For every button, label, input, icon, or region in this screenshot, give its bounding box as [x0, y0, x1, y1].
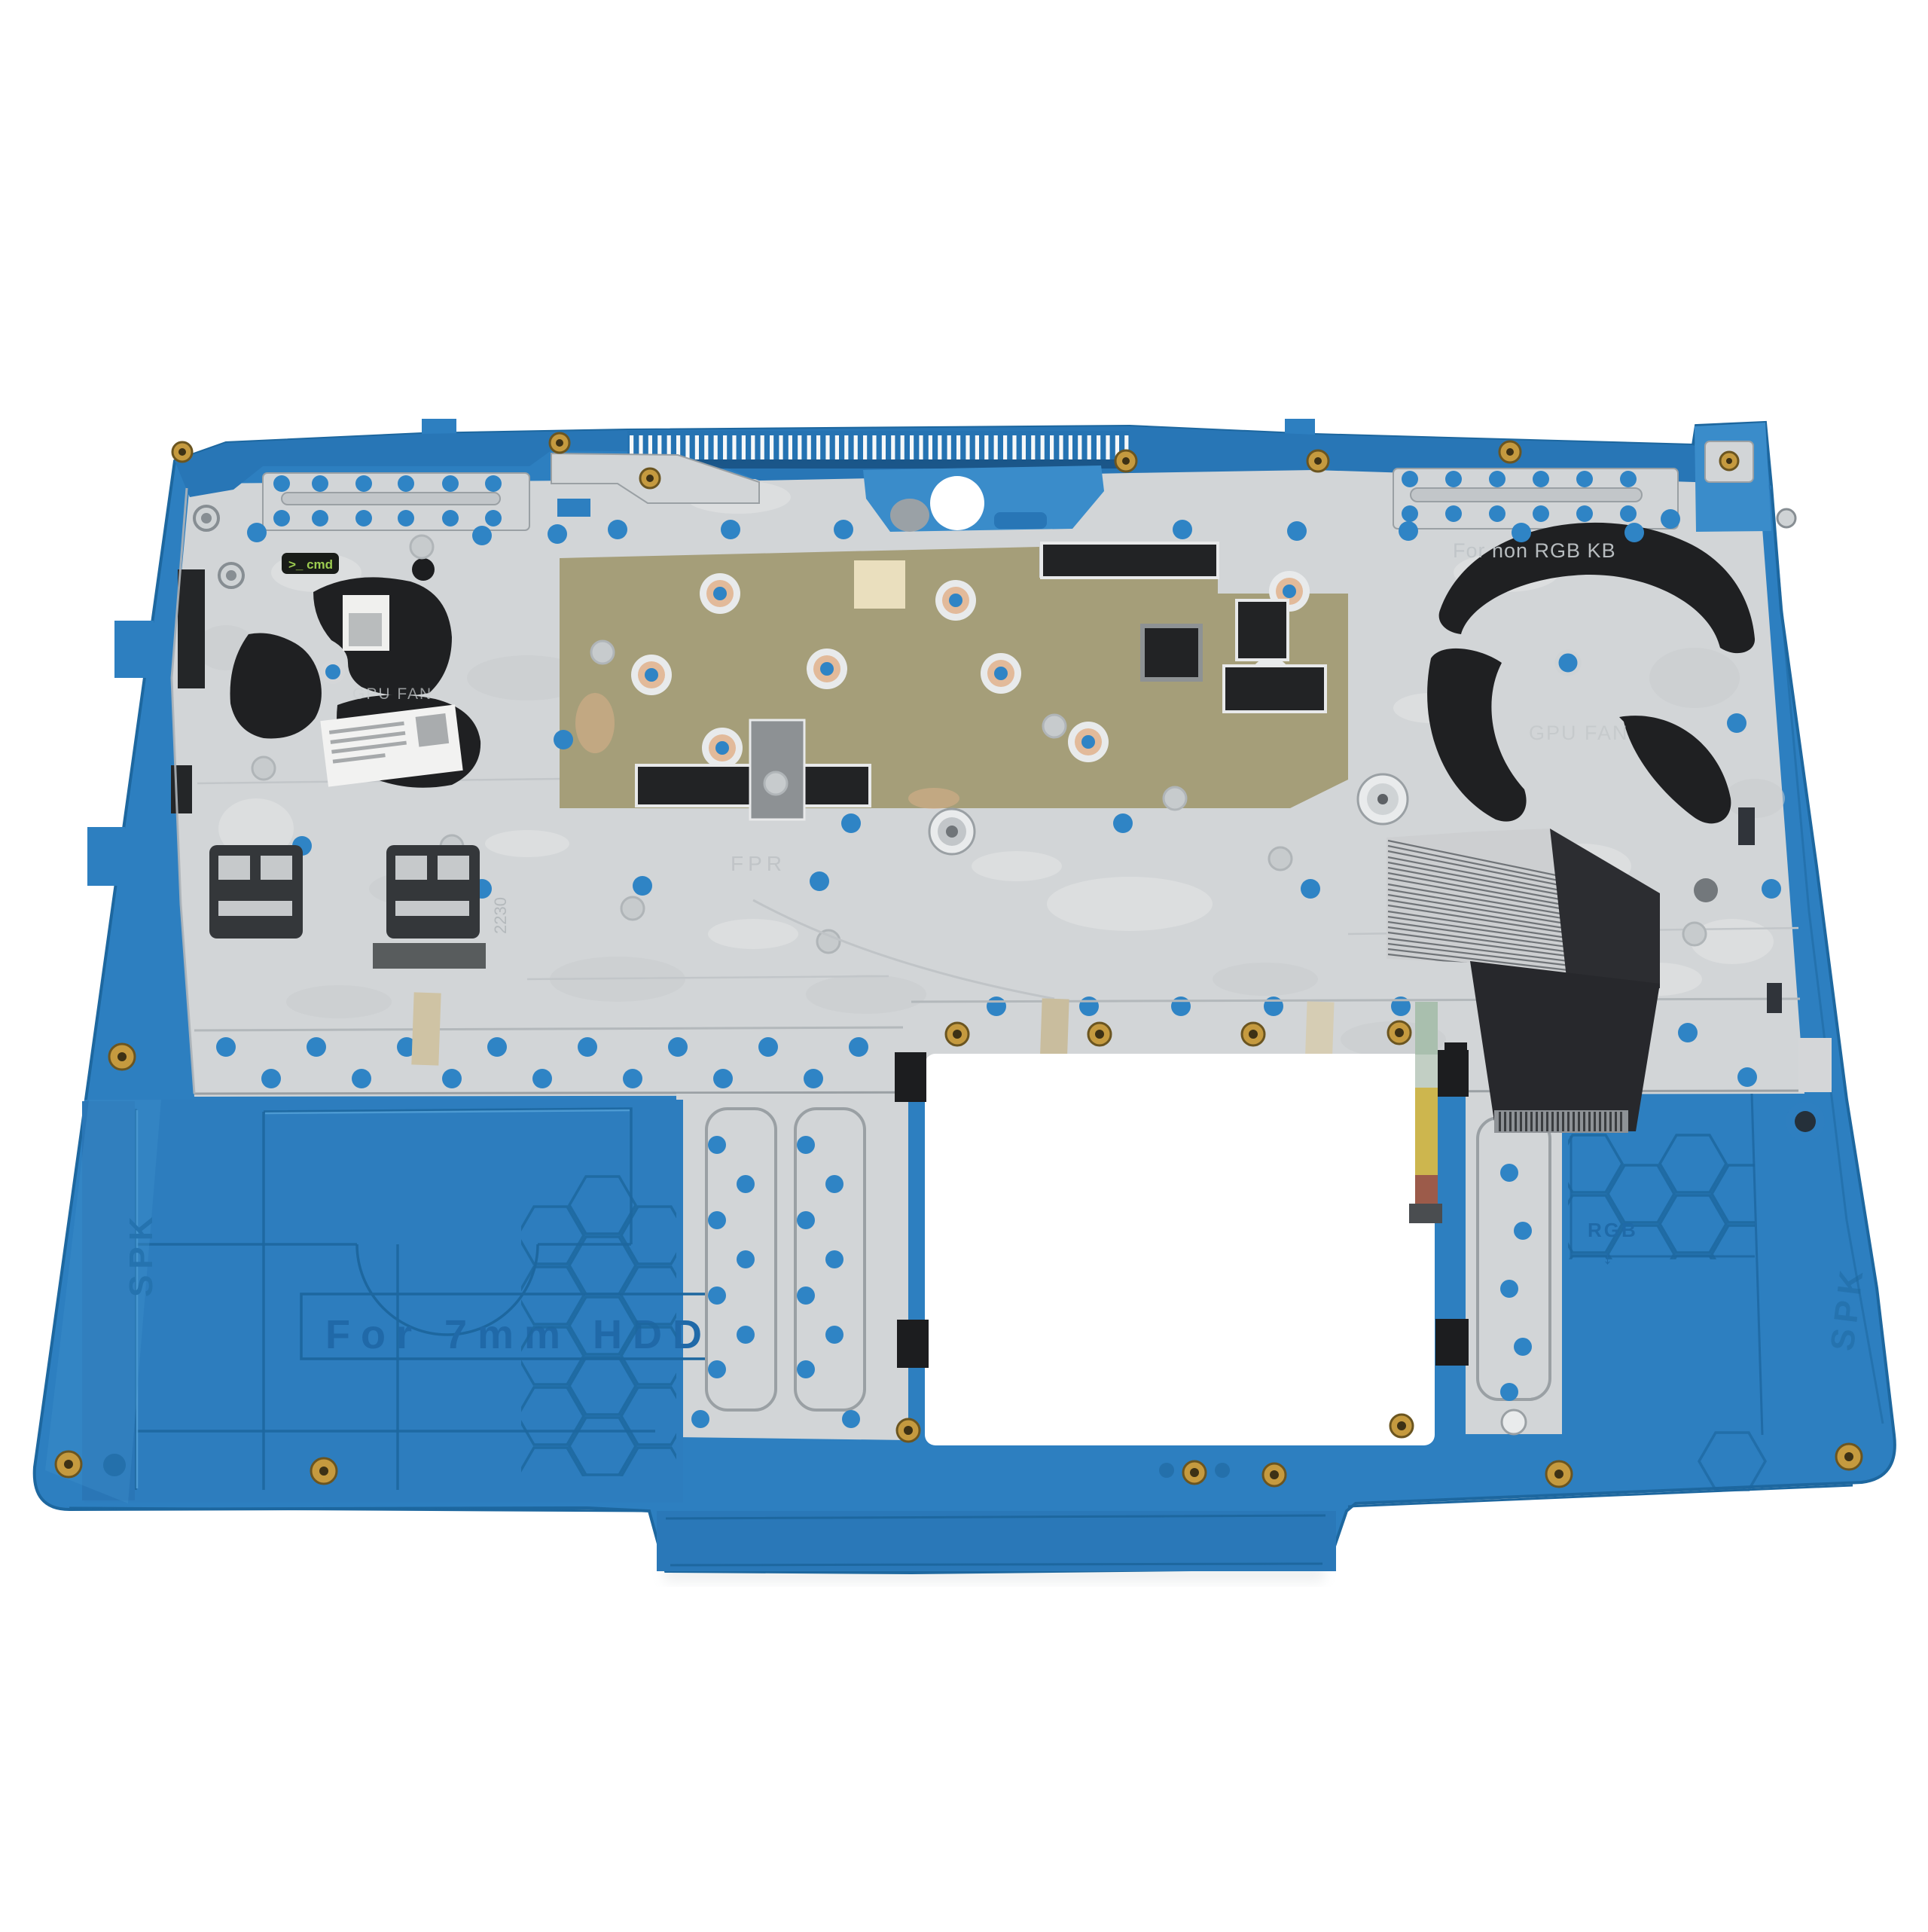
svg-text:2230: 2230 — [491, 897, 510, 934]
svg-text:SPK: SPK — [123, 1211, 160, 1297]
svg-text:For 7mm HDD: For 7mm HDD — [325, 1312, 712, 1357]
svg-text:For non RGB KB: For non RGB KB — [1453, 539, 1616, 562]
svg-text:GPU FAN: GPU FAN — [352, 685, 432, 703]
svg-text:RGB: RGB — [1588, 1219, 1638, 1241]
svg-text:FPR: FPR — [731, 852, 786, 875]
svg-text:>_ cmd: >_ cmd — [288, 557, 333, 572]
svg-text:GPU FAN: GPU FAN — [1529, 722, 1629, 744]
svg-text:↓: ↓ — [1603, 1246, 1612, 1268]
